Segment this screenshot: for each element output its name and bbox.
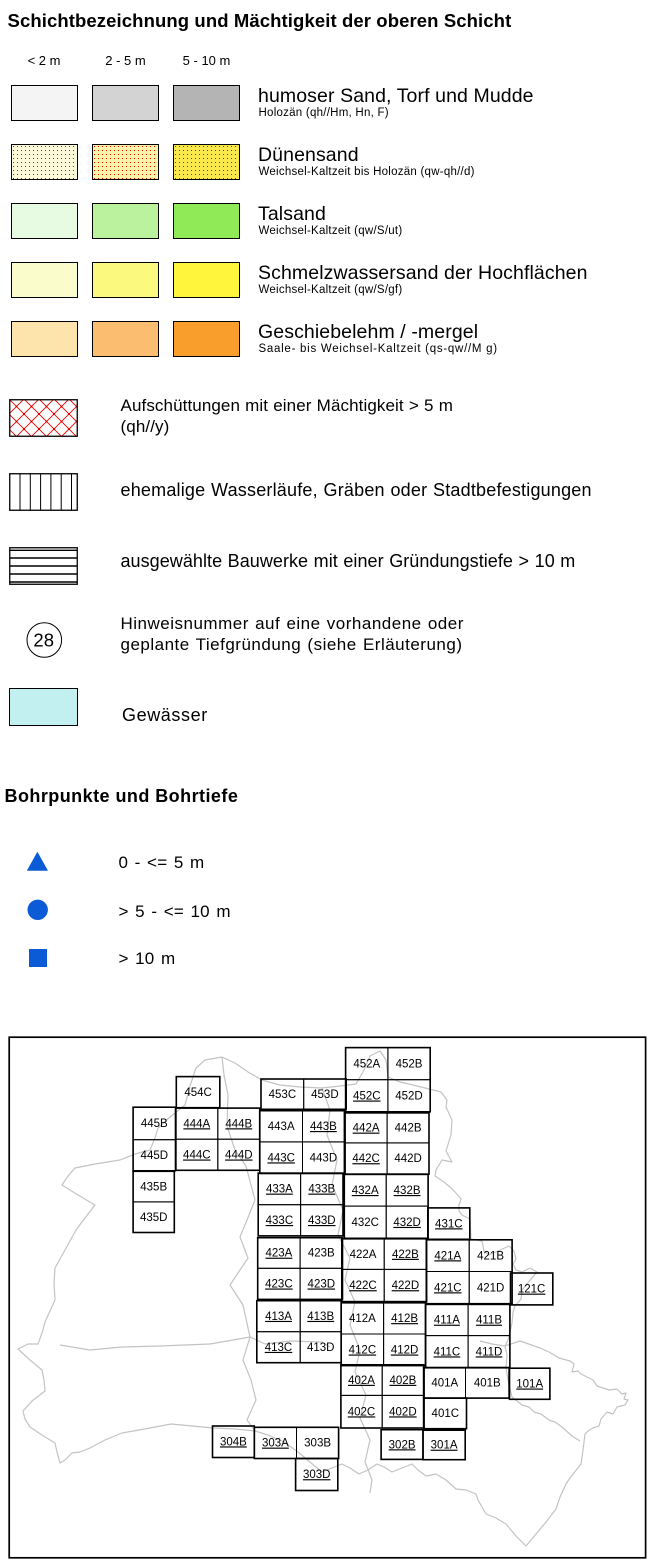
svg-text:412C: 412C: [349, 1345, 377, 1357]
svg-text:422D: 422D: [392, 1280, 420, 1292]
svg-text:432C: 432C: [351, 1217, 379, 1229]
svg-text:433A: 433A: [266, 1184, 293, 1196]
svg-text:432A: 432A: [352, 1185, 379, 1197]
svg-text:443D: 443D: [310, 1152, 338, 1164]
svg-text:413D: 413D: [307, 1342, 335, 1354]
svg-text:412D: 412D: [391, 1345, 419, 1357]
svg-text:433D: 433D: [308, 1215, 336, 1227]
svg-text:442C: 442C: [352, 1153, 380, 1165]
svg-text:421A: 421A: [434, 1250, 461, 1262]
svg-text:422C: 422C: [349, 1280, 377, 1292]
svg-text:421B: 421B: [477, 1250, 504, 1262]
svg-text:444C: 444C: [183, 1150, 211, 1162]
svg-text:444A: 444A: [183, 1118, 210, 1130]
svg-text:301A: 301A: [431, 1440, 458, 1452]
svg-text:411A: 411A: [434, 1315, 460, 1327]
svg-text:433C: 433C: [266, 1215, 294, 1227]
svg-text:432B: 432B: [394, 1185, 421, 1197]
svg-text:453C: 453C: [269, 1089, 297, 1101]
svg-text:423B: 423B: [308, 1248, 335, 1260]
svg-text:412B: 412B: [391, 1313, 418, 1325]
svg-text:435D: 435D: [140, 1212, 168, 1224]
svg-text:413A: 413A: [265, 1311, 292, 1323]
svg-text:28: 28: [33, 630, 54, 651]
svg-text:443C: 443C: [267, 1152, 295, 1164]
svg-text:402B: 402B: [389, 1375, 416, 1387]
svg-text:421D: 421D: [477, 1282, 505, 1294]
svg-text:421C: 421C: [434, 1282, 462, 1294]
svg-text:413B: 413B: [307, 1311, 334, 1323]
svg-text:422B: 422B: [392, 1249, 419, 1261]
svg-text:401A: 401A: [431, 1378, 458, 1390]
svg-text:435B: 435B: [140, 1181, 167, 1193]
svg-text:442B: 442B: [395, 1123, 422, 1135]
svg-text:442A: 442A: [353, 1123, 380, 1135]
svg-text:303D: 303D: [303, 1469, 331, 1481]
svg-text:452D: 452D: [395, 1091, 423, 1103]
svg-text:445B: 445B: [141, 1118, 168, 1130]
svg-text:454C: 454C: [184, 1087, 212, 1099]
svg-text:121C: 121C: [518, 1284, 546, 1296]
svg-text:303B: 303B: [304, 1438, 331, 1450]
svg-text:302B: 302B: [389, 1439, 416, 1451]
svg-text:423A: 423A: [265, 1248, 292, 1260]
svg-text:444D: 444D: [225, 1150, 253, 1162]
svg-text:444B: 444B: [225, 1118, 252, 1130]
svg-text:413C: 413C: [265, 1342, 293, 1354]
svg-text:452B: 452B: [396, 1058, 423, 1070]
svg-text:443B: 443B: [310, 1121, 337, 1133]
svg-text:452A: 452A: [353, 1058, 380, 1070]
svg-text:433B: 433B: [308, 1184, 335, 1196]
svg-text:401C: 401C: [432, 1408, 460, 1420]
svg-text:445D: 445D: [141, 1150, 169, 1162]
svg-text:303A: 303A: [262, 1438, 289, 1450]
svg-text:423C: 423C: [265, 1279, 293, 1291]
svg-text:412A: 412A: [349, 1313, 376, 1325]
svg-text:304B: 304B: [220, 1436, 247, 1448]
svg-text:101A: 101A: [516, 1379, 543, 1391]
svg-text:442D: 442D: [394, 1153, 422, 1165]
svg-text:432D: 432D: [393, 1217, 421, 1229]
svg-text:411D: 411D: [476, 1346, 503, 1358]
svg-text:431C: 431C: [435, 1218, 463, 1230]
svg-text:423D: 423D: [308, 1279, 336, 1291]
svg-text:443A: 443A: [268, 1121, 295, 1133]
svg-text:411C: 411C: [434, 1346, 461, 1358]
svg-text:411B: 411B: [476, 1315, 502, 1327]
svg-text:402C: 402C: [348, 1406, 376, 1418]
svg-text:401B: 401B: [474, 1378, 501, 1390]
svg-text:402D: 402D: [389, 1406, 417, 1418]
svg-text:453D: 453D: [311, 1089, 339, 1101]
svg-text:452C: 452C: [353, 1091, 381, 1103]
svg-text:402A: 402A: [348, 1375, 375, 1387]
svg-text:422A: 422A: [350, 1249, 377, 1261]
